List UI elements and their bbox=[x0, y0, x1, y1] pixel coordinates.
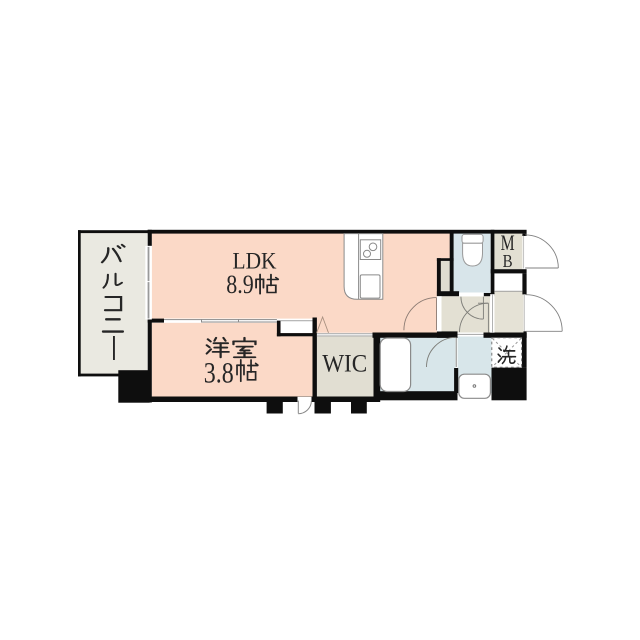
svg-text:WIC: WIC bbox=[322, 351, 367, 378]
svg-text:B: B bbox=[503, 251, 513, 271]
svg-text:3.8: 3.8 bbox=[204, 356, 234, 389]
svg-text:8.9: 8.9 bbox=[226, 270, 254, 299]
